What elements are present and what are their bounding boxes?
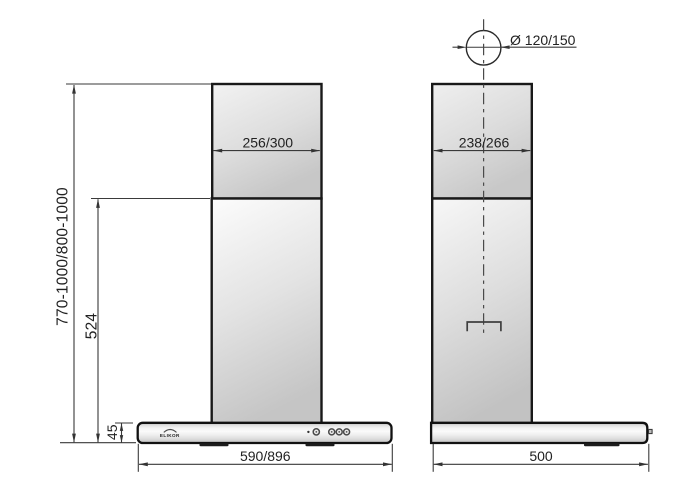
svg-text:Ø 120/150: Ø 120/150: [510, 32, 576, 48]
svg-text:500: 500: [529, 448, 553, 464]
svg-text:238/266: 238/266: [459, 134, 510, 150]
svg-text:590/896: 590/896: [240, 448, 291, 464]
svg-text:524: 524: [83, 313, 100, 340]
svg-text:45: 45: [104, 424, 120, 440]
svg-text:256/300: 256/300: [242, 134, 293, 150]
svg-text:ELIKOR: ELIKOR: [160, 433, 180, 438]
svg-text:770-1000/800-1000: 770-1000/800-1000: [54, 187, 71, 326]
